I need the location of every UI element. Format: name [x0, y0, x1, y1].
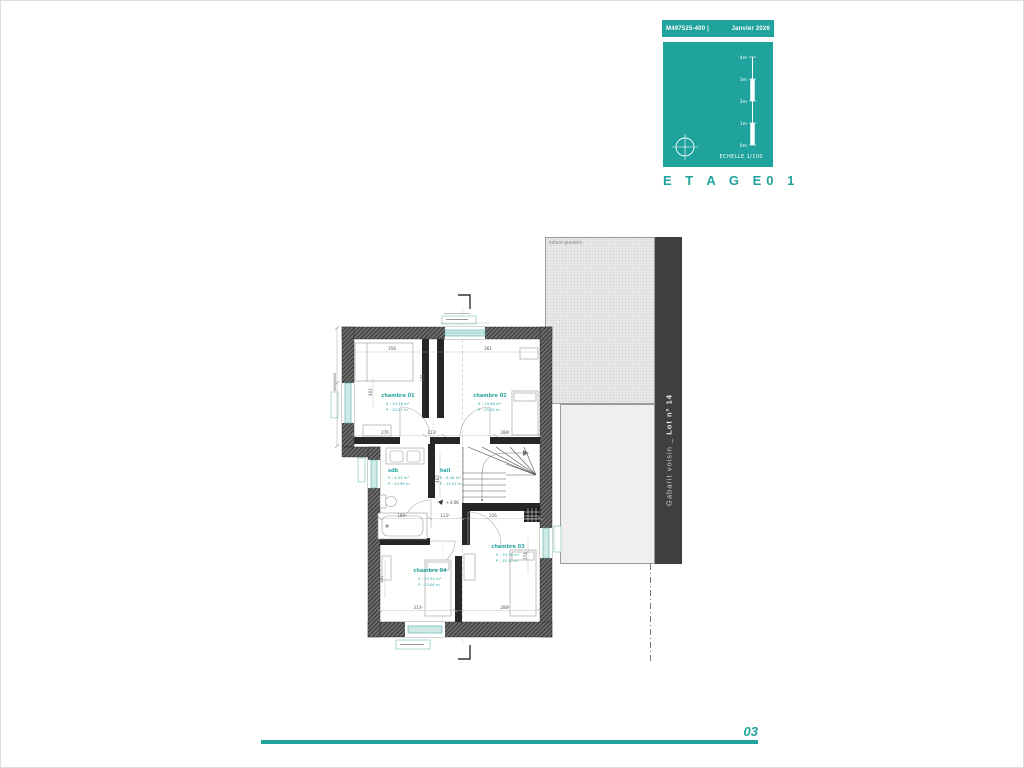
scale-tick: 4m: [740, 55, 747, 61]
dimension-label: 276: [381, 430, 389, 435]
floor-plan: 358 361 276 401 276 113² 288² 462 186² 1…: [330, 288, 580, 673]
room-name: chambre 03: [491, 544, 525, 550]
gabarit-text: Gabarit voisin _: [664, 434, 673, 505]
ref-separator: |: [707, 26, 709, 32]
room-perimeter: P : 13.02 m: [478, 407, 500, 412]
plan-reference: M497525-400: [666, 26, 705, 32]
scale-tick: 1m: [740, 121, 747, 127]
dimension-label: 226: [489, 513, 497, 518]
scale-tick: 2m: [740, 99, 747, 105]
room-surface: S : 10.76 m²: [496, 552, 520, 557]
room-sdb: sdb S : 4.03 m² P : 10.99 m: [388, 468, 410, 486]
room-chambre-02: chambre 02 S : 13.66 m² P : 13.02 m: [473, 393, 507, 412]
window-left-upper: [342, 383, 354, 423]
room-labels: chambre 01 S : 13.16 m² P : 13.27 m cham…: [381, 393, 525, 587]
window-tag-left-lower: [358, 458, 365, 482]
room-name: sdb: [388, 468, 399, 474]
lot-number: Lot n° 14: [664, 394, 673, 435]
titleblock-ref-strip: M497525-400 | Janvier 2026: [662, 20, 774, 37]
room-surface: S : 13.66 m²: [478, 401, 502, 406]
dimension-label: 313²: [413, 605, 423, 610]
scale-tick: 3m: [740, 77, 747, 83]
desk-chambre-03-icon: [464, 554, 475, 580]
neighbor-lot-label: Gabarit voisin _ Lot n° 14: [664, 394, 673, 506]
stairs: [463, 447, 536, 503]
window-tag-bottom: [396, 640, 430, 649]
window-tag-right: [554, 526, 561, 552]
window-tag-top: [440, 313, 490, 324]
page-number: 03: [700, 724, 758, 739]
room-surface: S : 4.03 m²: [388, 475, 409, 480]
room-name: hall: [440, 468, 451, 474]
page-title-number: 0 1: [766, 173, 799, 188]
window-left-lower: [368, 460, 380, 488]
window-right: [540, 528, 552, 558]
room-surface: S : 13.16 m²: [386, 401, 410, 406]
dimension-label: 113²: [440, 513, 450, 518]
room-perimeter: P : 15.15 m: [496, 558, 518, 563]
window-top: [445, 327, 485, 339]
scale-bar-graphic: 4m 3m 2m 1m 0m ECHELLE 1/100: [663, 42, 773, 167]
section-mark-bottom: [458, 645, 470, 659]
room-hall: hall S : 8.48 m² P : 12.47 m: [440, 468, 462, 486]
footer-rule: [261, 740, 758, 744]
dimension-label: 288²: [500, 605, 510, 610]
floor-plan-drawing: 358 361 276 401 276 113² 288² 462 186² 1…: [330, 288, 580, 673]
dimension-label: 361: [484, 346, 492, 351]
lot-boundary-line: [650, 564, 651, 664]
room-perimeter: P : 10.99 m: [388, 481, 410, 486]
level-marker: +3.06: [438, 500, 459, 506]
bed-chambre-01-icon: [355, 343, 413, 381]
scale-label: ECHELLE 1/100: [720, 154, 764, 160]
neighbor-lot-band: Gabarit voisin _ Lot n° 14: [655, 237, 682, 564]
dimension-label: 186²: [397, 513, 407, 518]
room-name: chambre 02: [473, 393, 507, 399]
level-value: +3.06: [446, 500, 459, 505]
room-name: chambre 04: [413, 568, 447, 574]
room-perimeter: P : 13.27 m: [386, 407, 408, 412]
titleblock-scale-box: 4m 3m 2m 1m 0m ECHELLE 1/100: [663, 42, 773, 167]
dimension-label: 374: [523, 552, 528, 560]
outer-dimension-chain: [334, 326, 340, 448]
toilet-icon: [380, 495, 397, 508]
dimension-label: 358: [388, 346, 396, 351]
dimension-label: 307: [379, 575, 384, 583]
room-chambre-01: chambre 01 S : 13.16 m² P : 13.27 m: [381, 393, 415, 412]
dimension-label: 401: [368, 388, 373, 396]
page-title: E T A G E 0 1: [663, 173, 773, 188]
room-surface: S : 8.48 m²: [440, 475, 461, 480]
roof-label: toiture graviers: [549, 240, 582, 246]
section-mark-top: [458, 295, 470, 309]
bed-chambre-02-icon: [512, 391, 538, 435]
scale-tick: 0m: [740, 143, 747, 149]
room-perimeter: P : 12.47 m: [440, 481, 462, 486]
plan-date: Janvier 2026: [732, 26, 770, 32]
page-title-word: E T A G E: [663, 173, 766, 188]
room-surface: S : 10.51 m²: [418, 576, 442, 581]
shaft-grid: [524, 508, 540, 522]
stair-walk-line: [481, 450, 529, 501]
window-bottom: [405, 622, 445, 637]
dimension-label: 113²: [427, 430, 437, 435]
desk-chambre-02-icon: [520, 348, 538, 359]
room-perimeter: P : 13.06 m: [418, 582, 440, 587]
dimension-label: 276: [420, 374, 425, 382]
scale-box-background: [663, 42, 773, 167]
sink-counter-icon: [386, 448, 424, 464]
dimension-label: 288²: [500, 430, 510, 435]
room-name: chambre 01: [381, 393, 415, 399]
